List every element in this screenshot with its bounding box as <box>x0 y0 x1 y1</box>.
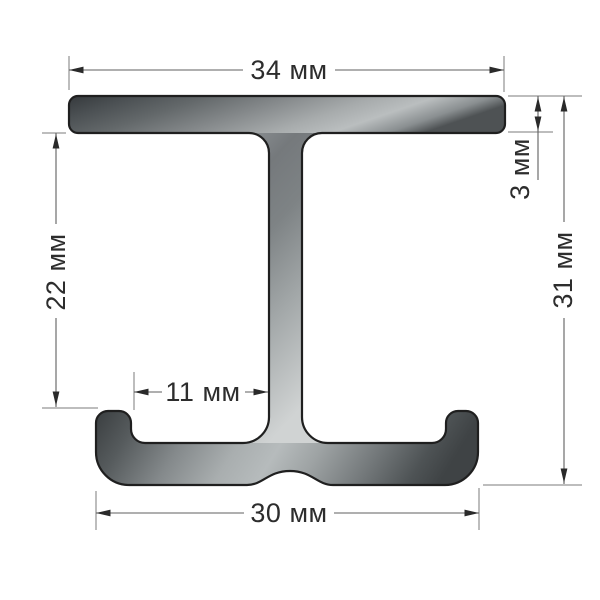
arrow-up-icon <box>53 134 60 149</box>
arrow-down-icon <box>535 117 542 132</box>
dimension-label-left-height: 22 мм <box>41 233 71 310</box>
profile-section <box>69 96 505 485</box>
arrow-down-icon <box>561 469 568 484</box>
profile-top-flange <box>69 96 505 133</box>
dimension-label-overall-height: 31 мм <box>548 231 578 308</box>
arrow-left-icon <box>134 389 149 396</box>
arrow-right-icon <box>490 67 505 74</box>
dimension-left-height: 22 мм <box>41 133 98 408</box>
dimension-label-flange-thickness: 3 мм <box>505 138 535 200</box>
arrow-up-icon <box>535 97 542 112</box>
arrow-down-icon <box>53 392 60 407</box>
dimension-label-top-width: 34 мм <box>250 55 327 85</box>
profile-drawing: 34 мм 3 мм 31 мм 22 мм 11 мм <box>0 0 600 600</box>
arrow-up-icon <box>561 97 568 112</box>
arrow-left-icon <box>69 67 84 74</box>
arrow-right-icon <box>465 510 480 517</box>
dimension-label-bottom-width: 30 мм <box>250 498 327 528</box>
dimension-top-width: 34 мм <box>69 55 504 92</box>
dimension-flange-thickness: 3 мм <box>505 96 582 200</box>
dimension-label-inner-width: 11 мм <box>165 377 240 407</box>
dimension-bottom-width: 30 мм <box>96 488 479 530</box>
dimension-inner-width: 11 мм <box>134 372 268 410</box>
arrow-left-icon <box>96 510 111 517</box>
drawing-canvas: 34 мм 3 мм 31 мм 22 мм 11 мм <box>0 0 600 600</box>
arrow-right-icon <box>254 389 269 396</box>
profile-web <box>243 130 329 443</box>
